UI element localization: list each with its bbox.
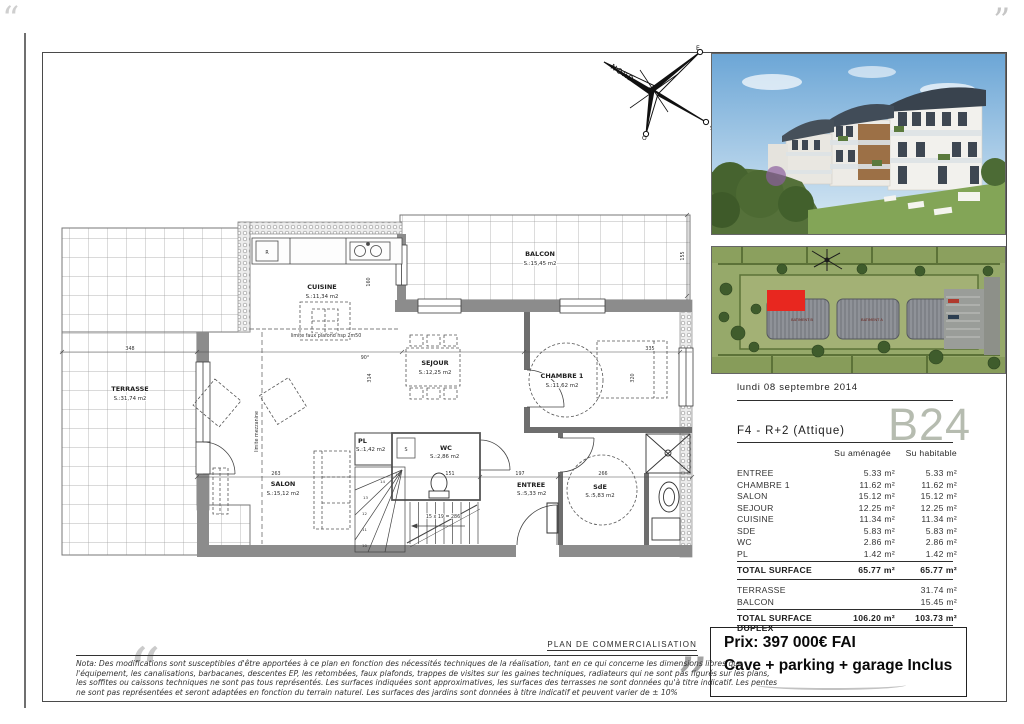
site-plan-image: BATIMENT B BATIMENT A (711, 246, 1006, 374)
info-panel: BATIMENT B BATIMENT A (710, 52, 1006, 700)
svg-text:S.:15,45 m2: S.:15,45 m2 (524, 261, 557, 267)
plan-commercialisation-label: PLAN DE COMMERCIALISATION (545, 640, 697, 649)
table-row: SDE5.83 m²5.83 m² (737, 526, 957, 538)
svg-text:S.:31,74 m2: S.:31,74 m2 (114, 396, 147, 402)
divider (737, 625, 953, 626)
svg-text:14: 14 (380, 479, 385, 484)
svg-text:S.:11,62 m2: S.:11,62 m2 (546, 383, 579, 389)
kitchen-counter (252, 238, 402, 264)
wall-hatched (238, 222, 250, 332)
svg-text:S.:5,33 m2: S.:5,33 m2 (517, 491, 546, 497)
scan-shadow (756, 680, 906, 690)
svg-text:S.:12,25 m2: S.:12,25 m2 (419, 370, 452, 376)
unit-type-label: F4 - R+2 (Attique) (737, 425, 845, 437)
room-label-cuisine: CUISINE (307, 283, 336, 291)
svg-text:266: 266 (598, 471, 607, 477)
svg-text:160: 160 (366, 277, 372, 286)
terrace-grid (62, 332, 250, 555)
turning-circle (529, 343, 603, 417)
table-row: SALON15.12 m²15.12 m² (737, 491, 957, 503)
bed (597, 341, 667, 398)
svg-text:197: 197 (515, 471, 524, 477)
table-row: SEJOUR12.25 m²12.25 m² (737, 503, 957, 515)
radiator (547, 503, 558, 533)
stairs-dim: 15 x 19 = 286 (426, 514, 460, 520)
dining-set (406, 335, 460, 399)
col-habitable: Su habitable (891, 448, 957, 458)
svg-text:348: 348 (125, 346, 134, 352)
staircase (355, 467, 480, 552)
svg-text:15: 15 (395, 472, 400, 477)
room-label-wc: WC (440, 444, 452, 452)
mezzanine-label: limite mezzanine (254, 411, 260, 452)
scan-edge-line (24, 33, 26, 708)
svg-text:155: 155 (680, 251, 686, 260)
batiment-a-label: BATIMENT A (861, 318, 883, 322)
svg-text:12: 12 (362, 511, 367, 516)
svg-text:314: 314 (367, 373, 373, 382)
table-row: ENTREE5.33 m²5.33 m² (737, 468, 957, 480)
scan-artifact-quote-icon: ” (993, 4, 1010, 38)
duplex-total-row: TOTAL SURFACE DUPLEX106.20 m²103.73 m² (737, 613, 957, 625)
col-amenagee: Su aménagée (817, 448, 891, 458)
svg-text:320: 320 (630, 373, 636, 382)
svg-text:335: 335 (645, 346, 654, 352)
scan-artifact-quote-icon: “ (2, 2, 19, 36)
sink-label: S (404, 447, 407, 453)
compass-west-label: O (642, 135, 647, 140)
pergola-grid (62, 228, 250, 332)
svg-text:11: 11 (362, 527, 367, 532)
annex-row: BALCON15.45 m² (737, 597, 957, 609)
svg-text:151: 151 (445, 471, 454, 477)
washbasin (652, 482, 680, 540)
svg-text:10: 10 (362, 543, 367, 548)
room-label-sejour: SEJOUR (421, 359, 448, 367)
room-label-balcon: BALCON (525, 250, 555, 258)
room-label-salon: SALON (271, 480, 296, 488)
room-label-terrasse: TERRASSE (111, 385, 148, 393)
price-label: Prix: 397 000€ FAI (724, 634, 856, 652)
room-label-chambre1: CHAMBRE 1 (541, 372, 584, 380)
unit-code: B24 (888, 399, 971, 451)
svg-text:S.:5,83 m2: S.:5,83 m2 (585, 493, 614, 499)
svg-text:13: 13 (363, 495, 368, 500)
angle-label: 90° (361, 355, 370, 361)
table-header: Su aménagée Su habitable (737, 448, 957, 458)
svg-text:263: 263 (271, 471, 280, 477)
room-label-entree: ENTREE (517, 481, 545, 489)
batiment-b-label: BATIMENT B (791, 318, 813, 322)
total-row: TOTAL SURFACE65.77 m²65.77 m² (737, 565, 957, 577)
annex-row: TERRASSE31.74 m² (737, 585, 957, 597)
svg-text:S.:11,34 m2: S.:11,34 m2 (306, 294, 339, 300)
compass-north-label: NORD (609, 62, 636, 84)
highlighted-unit (767, 290, 805, 311)
divider (737, 442, 953, 443)
room-label-pl: PL (358, 437, 367, 445)
table-row: PL1.42 m²1.42 m² (737, 549, 957, 561)
divider (737, 561, 953, 562)
wall-hatched (238, 222, 402, 234)
table-row: WC2.86 m²2.86 m² (737, 537, 957, 549)
building-render-photo (711, 53, 1006, 235)
floor-plan: R limite faux plafond hsp 2m50 limite me… (50, 200, 700, 570)
svg-text:S.:15,12 m2: S.:15,12 m2 (267, 491, 300, 497)
commercialisation-sheet: “ ” “ ” NORD E S O (0, 0, 1024, 724)
divider (737, 579, 953, 580)
room-label-sde: SdE (593, 483, 607, 491)
wall (197, 545, 692, 557)
svg-text:S.:2,86 m2: S.:2,86 m2 (430, 454, 459, 460)
table-row: CHAMBRE 111.62 m²11.62 m² (737, 480, 957, 492)
compass-rose-icon: NORD E S O (596, 44, 714, 140)
legal-note: Nota: Des modifications sont susceptible… (76, 655, 698, 698)
divider (737, 609, 953, 610)
table-row: CUISINE11.34 m²11.34 m² (737, 514, 957, 526)
compass-east-label: E (696, 45, 700, 52)
svg-text:S.:1,42 m2: S.:1,42 m2 (356, 447, 385, 453)
false-ceiling-label: limite faux plafond hsp 2m50 (291, 333, 362, 339)
date-label: lundi 08 septembre 2014 (737, 382, 858, 393)
